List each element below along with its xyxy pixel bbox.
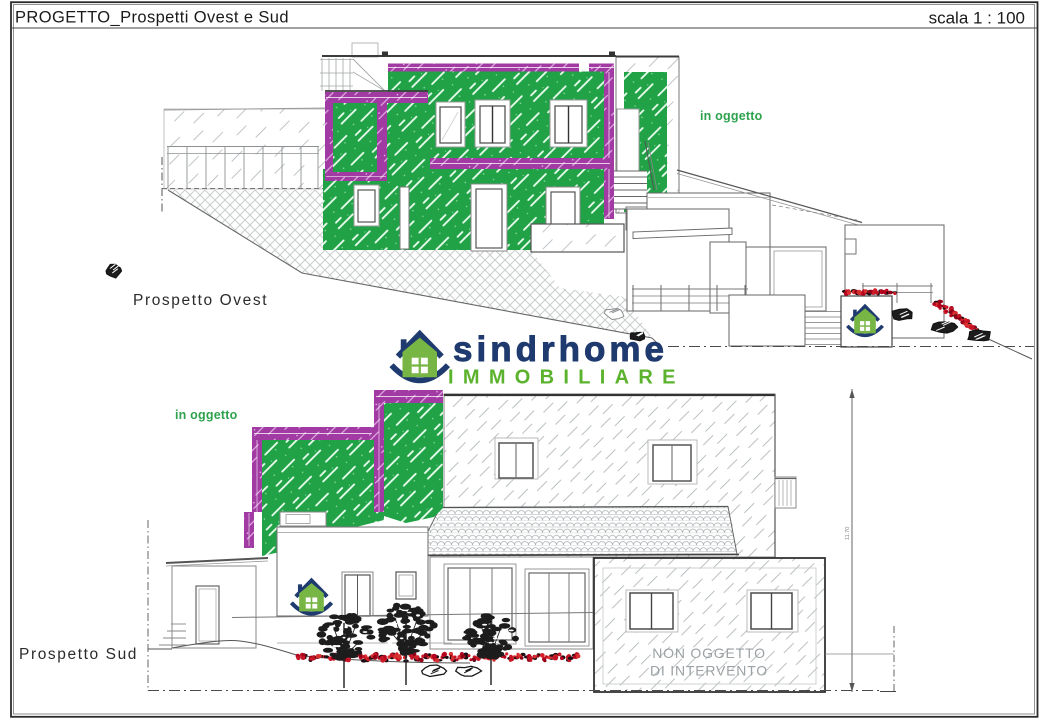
svg-text:in oggetto: in oggetto bbox=[175, 408, 238, 422]
svg-text:sindrhome: sindrhome bbox=[453, 330, 668, 369]
svg-text:Prospetto Sud: Prospetto Sud bbox=[19, 646, 138, 663]
svg-text:DI INTERVENTO: DI INTERVENTO bbox=[650, 663, 768, 679]
svg-text:11.70: 11.70 bbox=[845, 527, 851, 540]
svg-text:in oggetto: in oggetto bbox=[700, 109, 763, 123]
svg-text:scala 1 : 100: scala 1 : 100 bbox=[929, 9, 1025, 28]
svg-text:PROGETTO_Prospetti Ovest e Sud: PROGETTO_Prospetti Ovest e Sud bbox=[15, 9, 289, 27]
svg-text:Prospetto Ovest: Prospetto Ovest bbox=[133, 292, 268, 309]
svg-text:NON OGGETTO: NON OGGETTO bbox=[652, 645, 766, 661]
svg-text:IMMOBILIARE: IMMOBILIARE bbox=[448, 367, 685, 389]
